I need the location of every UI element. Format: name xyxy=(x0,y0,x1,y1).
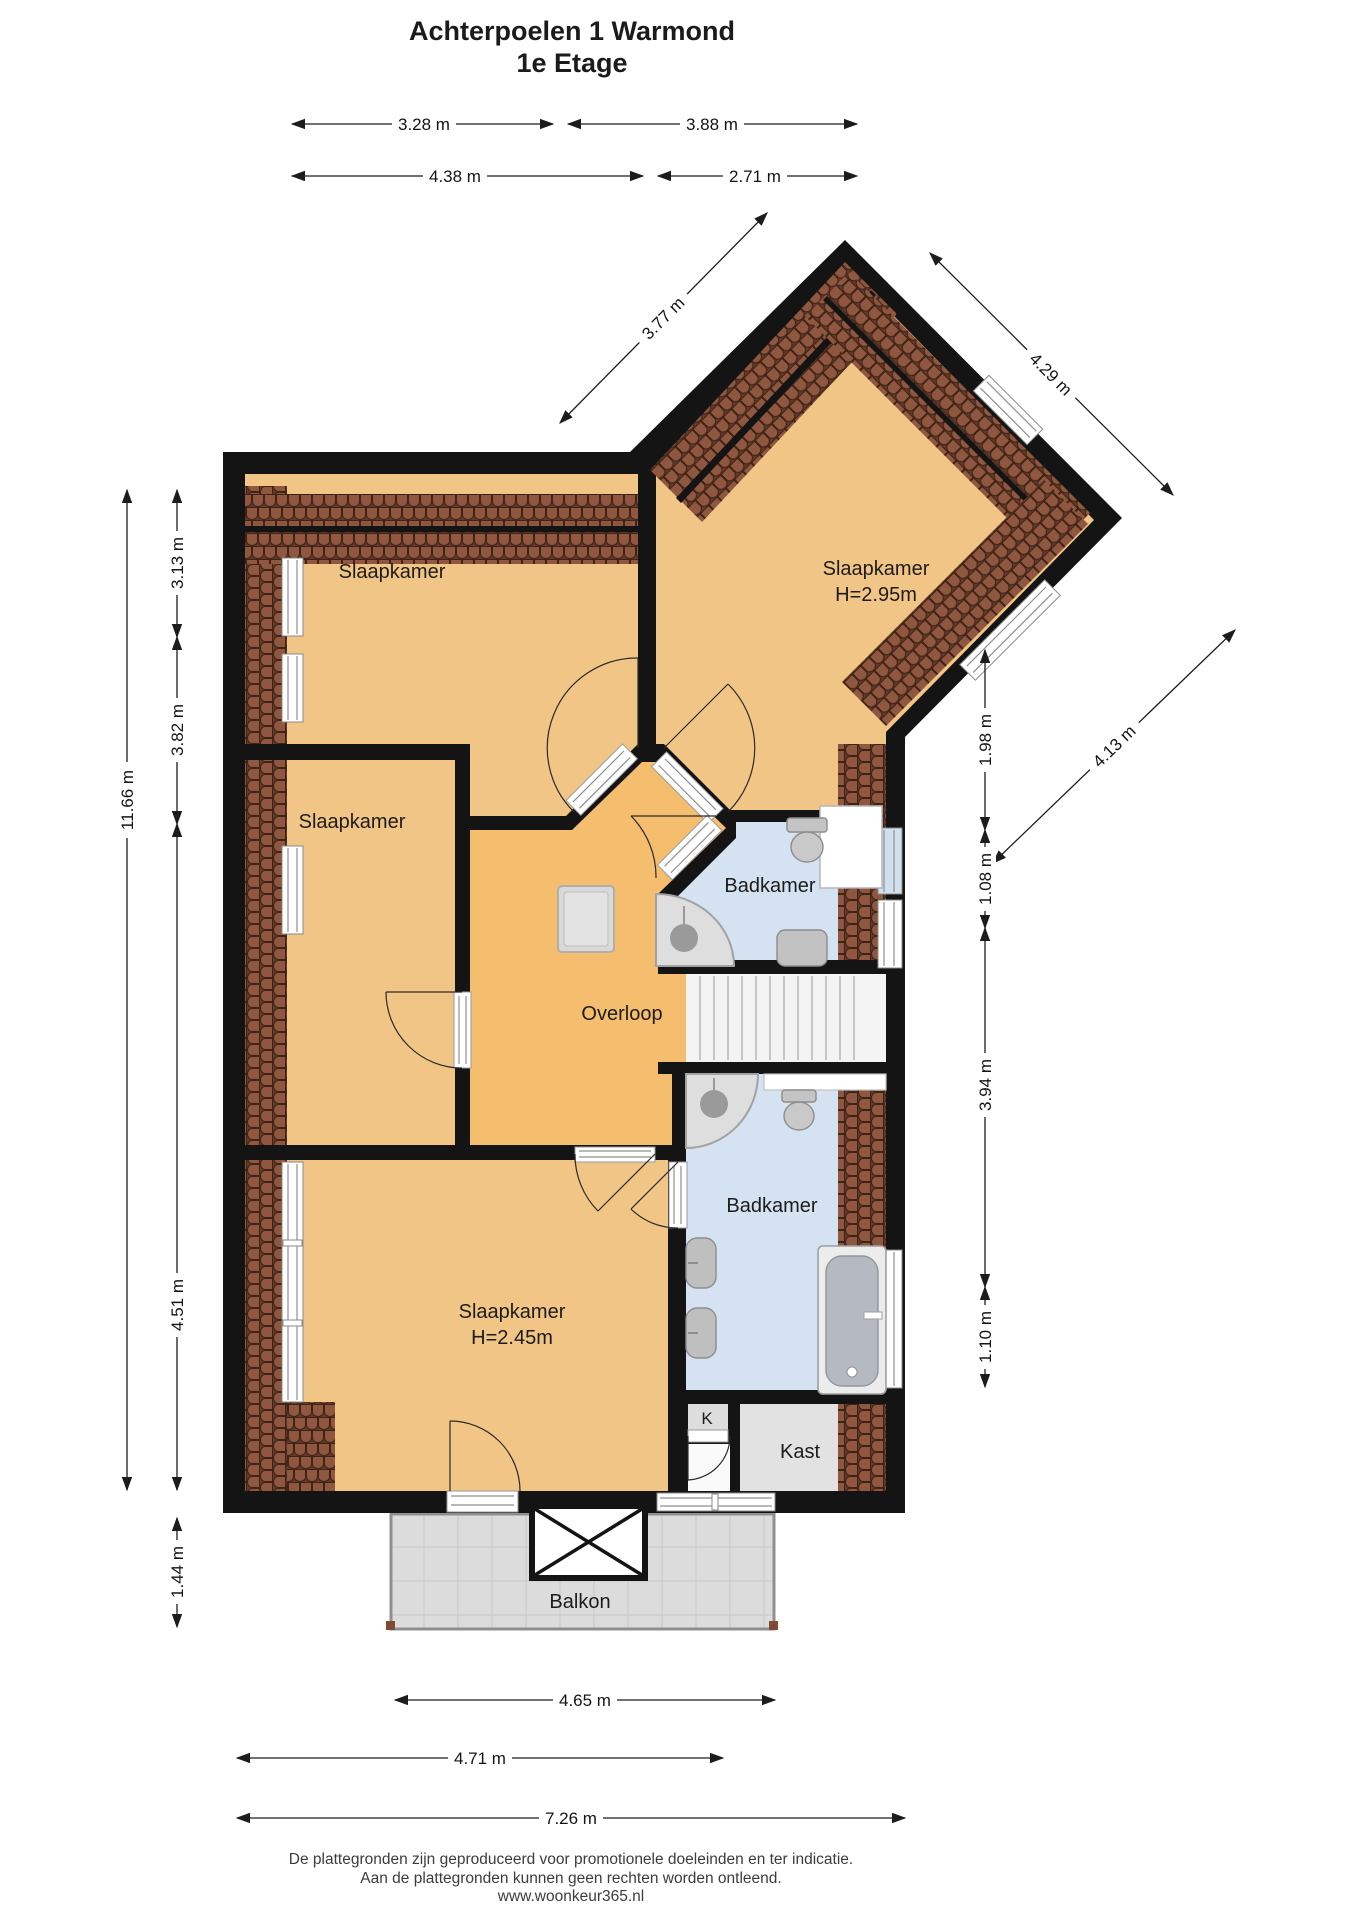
dim-left-seg1: 3.13 m xyxy=(166,490,188,637)
svg-text:3.94 m: 3.94 m xyxy=(976,1059,995,1111)
dim-left-total: 11.66 m xyxy=(116,490,138,1490)
label-slaapkamer-middle: Slaapkamer xyxy=(299,811,406,833)
dim-bottom1: 4.65 m xyxy=(395,1689,775,1710)
dim-left-seg2: 3.82 m xyxy=(166,637,188,824)
label-slaapkamer-wing: Slaapkamer xyxy=(823,558,930,580)
page-title: Achterpoelen 1 Warmond xyxy=(409,16,735,46)
footer-line2: Aan de plattegronden kunnen geen rechten… xyxy=(360,1870,781,1887)
svg-text:4.13 m: 4.13 m xyxy=(1089,721,1140,771)
svg-text:4.71 m: 4.71 m xyxy=(454,1749,506,1768)
toilet-bottom-bathroom xyxy=(782,1090,816,1130)
label-overloop: Overloop xyxy=(581,1003,662,1025)
svg-text:3.13 m: 3.13 m xyxy=(168,537,187,589)
window-bottom-bedroom xyxy=(282,1162,303,1402)
svg-text:3.88 m: 3.88 m xyxy=(686,115,738,134)
dim-diag-se: 4.13 m xyxy=(993,630,1235,863)
page-subtitle: 1e Etage xyxy=(516,48,627,78)
label-k-closet: K xyxy=(701,1409,713,1428)
svg-text:1.08 m: 1.08 m xyxy=(976,853,995,905)
svg-text:4.38 m: 4.38 m xyxy=(429,167,481,186)
svg-text:4.65 m: 4.65 m xyxy=(559,1691,611,1710)
dim-bottom3: 7.26 m xyxy=(237,1807,905,1828)
dim-top2-right: 2.71 m xyxy=(658,165,857,186)
label-badkamer-top: Badkamer xyxy=(724,875,815,897)
dim-left-seg3: 4.51 m xyxy=(166,824,188,1490)
window-balcony xyxy=(657,1493,775,1511)
svg-text:1.10 m: 1.10 m xyxy=(976,1311,995,1363)
dim-top2-left: 4.38 m xyxy=(292,165,643,186)
dim-top1-right: 3.88 m xyxy=(568,113,857,134)
svg-text:7.26 m: 7.26 m xyxy=(545,1809,597,1828)
dim-left-balcony: 1.44 m xyxy=(166,1518,188,1627)
window-topleft-bedroom xyxy=(282,558,303,636)
dim-right-seg4: 1.10 m xyxy=(974,1287,996,1387)
dim-bottom2: 4.71 m xyxy=(237,1747,723,1768)
floorplan-canvas: Achterpoelen 1 Warmond 1e Etage xyxy=(0,0,1358,1920)
sink-top-bathroom xyxy=(777,930,827,966)
label-kast: Kast xyxy=(780,1441,820,1463)
label-slaapkamer-bottom-height: H=2.45m xyxy=(471,1327,553,1349)
balcony-post-left xyxy=(386,1621,395,1630)
svg-text:4.29 m: 4.29 m xyxy=(1026,349,1076,399)
counter-top-bathroom xyxy=(820,806,882,888)
window-stairwell-right xyxy=(878,900,902,968)
window-middle-bedroom-2 xyxy=(282,846,303,934)
label-slaapkamer-topleft: Slaapkamer xyxy=(339,561,446,583)
k-closet-nook xyxy=(688,1444,730,1491)
tile-band-left-bottom xyxy=(245,1160,287,1491)
footer-line3: www.woonkeur365.nl xyxy=(497,1888,644,1905)
label-slaapkamer-wing-height: H=2.95m xyxy=(835,584,917,606)
dim-right-seg2: 1.08 m xyxy=(974,830,996,928)
svg-text:1.44 m: 1.44 m xyxy=(168,1546,187,1598)
floorplan-page: Achterpoelen 1 Warmond 1e Etage xyxy=(0,0,1358,1920)
label-balkon: Balkon xyxy=(549,1591,610,1613)
svg-text:1.98 m: 1.98 m xyxy=(976,714,995,766)
balcony-post-right xyxy=(769,1621,778,1630)
toilet-top-bathroom xyxy=(787,818,827,862)
label-badkamer-bottom: Badkamer xyxy=(726,1195,817,1217)
svg-text:3.82 m: 3.82 m xyxy=(168,704,187,756)
svg-text:4.51 m: 4.51 m xyxy=(168,1279,187,1331)
stairwell xyxy=(686,974,886,1062)
overloop-strip xyxy=(658,1074,672,1145)
tile-band-left-middle xyxy=(245,760,287,1145)
svg-text:3.77 m: 3.77 m xyxy=(638,293,688,343)
svg-text:3.28 m: 3.28 m xyxy=(398,115,450,134)
tile-band-corner xyxy=(287,1402,335,1491)
footer: De plattegronden zijn geproduceerd voor … xyxy=(289,1851,853,1905)
dim-right-seg3: 3.94 m xyxy=(974,928,996,1287)
dim-top1-left: 3.28 m xyxy=(292,113,553,134)
label-slaapkamer-bottom: Slaapkamer xyxy=(459,1301,566,1323)
window-middle-bedroom-1 xyxy=(282,654,303,722)
tile-band-right-kast xyxy=(838,1404,886,1491)
svg-text:11.66 m: 11.66 m xyxy=(118,770,137,830)
sink-left-2 xyxy=(686,1308,716,1358)
shelf-bottom-bathroom xyxy=(764,1074,886,1090)
sink-left-1 xyxy=(686,1238,716,1288)
roof-window xyxy=(558,886,614,952)
footer-line1: De plattegronden zijn geproduceerd voor … xyxy=(289,1851,853,1868)
bathtub xyxy=(818,1246,886,1394)
svg-text:2.71 m: 2.71 m xyxy=(729,167,781,186)
balcony-rooflight xyxy=(532,1506,645,1578)
